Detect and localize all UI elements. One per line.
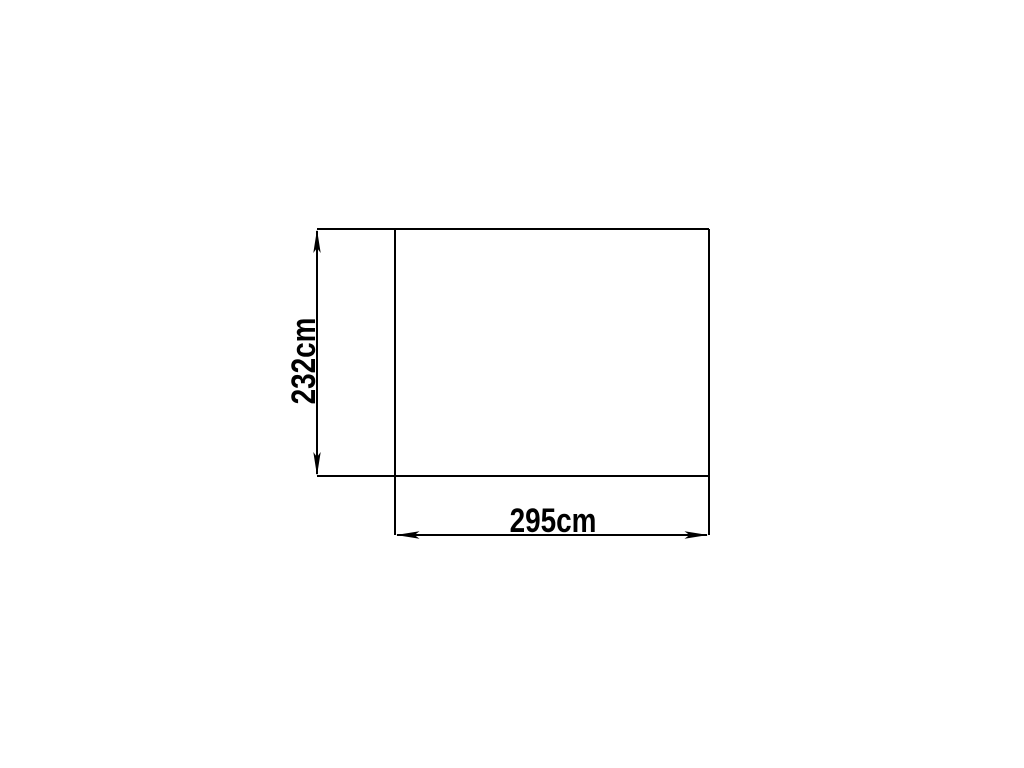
width-dimension-label: 295cm: [510, 501, 597, 539]
dimension-diagram: 232cm 295cm: [0, 0, 1024, 768]
drawing-canvas: 232cm 295cm: [0, 0, 1024, 768]
height-dimension-label: 232cm: [284, 318, 322, 405]
